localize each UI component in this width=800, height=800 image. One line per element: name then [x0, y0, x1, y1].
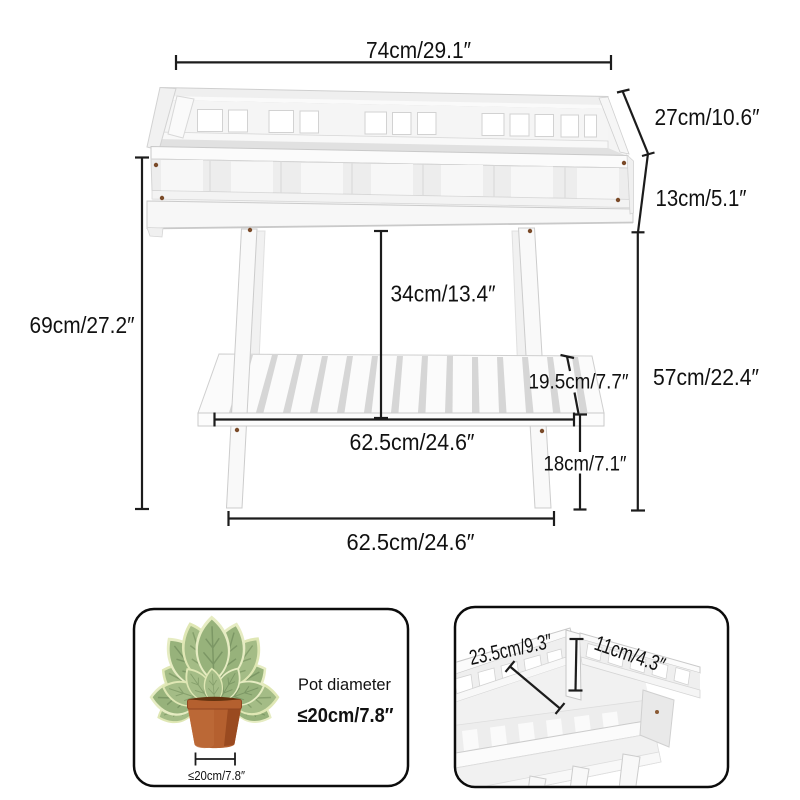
svg-text:62.5cm/24.6″: 62.5cm/24.6″ — [350, 429, 475, 455]
svg-text:≤20cm/7.8″: ≤20cm/7.8″ — [188, 768, 245, 783]
svg-text:19.5cm/7.7″: 19.5cm/7.7″ — [529, 371, 630, 394]
svg-text:13cm/5.1″: 13cm/5.1″ — [656, 185, 747, 211]
svg-text:62.5cm/24.6″: 62.5cm/24.6″ — [347, 529, 475, 555]
svg-text:27cm/10.6″: 27cm/10.6″ — [655, 104, 760, 130]
svg-text:18cm/7.1″: 18cm/7.1″ — [544, 453, 627, 476]
svg-text:69cm/27.2″: 69cm/27.2″ — [30, 312, 135, 338]
svg-text:74cm/29.1″: 74cm/29.1″ — [366, 37, 471, 63]
svg-text:Pot diameter: Pot diameter — [298, 675, 391, 694]
svg-text:34cm/13.4″: 34cm/13.4″ — [391, 281, 496, 307]
svg-text:≤20cm/7.8″: ≤20cm/7.8″ — [298, 705, 394, 727]
svg-text:57cm/22.4″: 57cm/22.4″ — [653, 364, 759, 390]
